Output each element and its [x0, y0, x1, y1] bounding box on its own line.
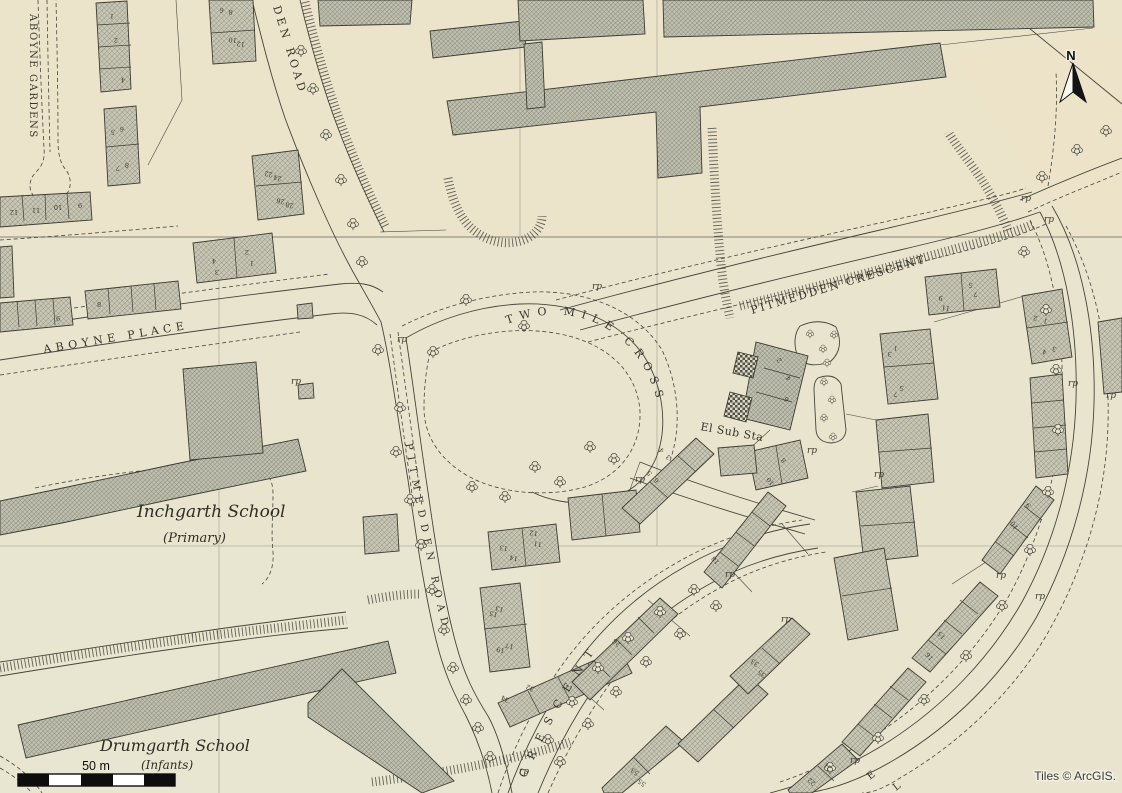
rp-marker: rp [1021, 194, 1031, 204]
building [318, 0, 412, 26]
house-number: 22 [264, 169, 274, 179]
house-number: 14 [509, 553, 519, 562]
rp-marker: rp [291, 377, 301, 387]
rp-marker: rp [1106, 391, 1116, 401]
rp-marker: rp [996, 571, 1006, 581]
house-number: 4 [211, 257, 216, 265]
north-arrow-label: N [1066, 48, 1075, 63]
house-number: 11 [533, 539, 543, 548]
drumgarth-school-label: Drumgarth School [99, 736, 250, 755]
house-number: 8 [97, 300, 101, 308]
drumgarth-type-label: (Infants) [141, 758, 193, 772]
house-number: 6 [119, 125, 124, 133]
map-attribution: Tiles © ArcGIS. [1034, 769, 1116, 783]
rp-marker: rp [1044, 215, 1054, 225]
house-number: 11 [941, 303, 950, 312]
house-number: 24 [273, 173, 283, 183]
house-number: 13 [499, 543, 509, 552]
map-viewport[interactable]: rprprprprprprprprprprprprprprprp ABOYNE … [0, 0, 1122, 793]
house-number: 2 [244, 248, 249, 256]
house-number: 10 [228, 35, 237, 44]
building [524, 42, 545, 109]
rp-marker: rp [807, 446, 817, 456]
house-number: 9 [78, 201, 82, 209]
inchgarth-school-label: Inchgarth School [136, 502, 285, 522]
rp-marker: rp [592, 282, 602, 292]
rp-marker: rp [1035, 592, 1045, 602]
house-number: 7 [115, 164, 120, 172]
house-number: 26 [276, 196, 286, 206]
house-number: 5 [110, 128, 115, 136]
building [0, 246, 14, 298]
building [104, 106, 140, 186]
building [297, 303, 313, 319]
house-number: 11 [32, 206, 40, 214]
building [733, 352, 758, 378]
building [252, 150, 304, 220]
house-number: 4 [120, 76, 125, 84]
house-number: 2 [113, 36, 118, 44]
house-number: 8 [124, 161, 129, 169]
rp-marker: rp [635, 475, 645, 485]
rp-marker: rp [874, 470, 884, 480]
building [183, 362, 263, 460]
building [876, 414, 934, 488]
scale-bar-label: 50 m [82, 759, 110, 773]
house-number: 1 [249, 259, 254, 267]
rp-marker: rp [781, 615, 791, 625]
house-number: 1 [109, 12, 114, 20]
building [1030, 374, 1068, 478]
building [518, 0, 645, 41]
house-number: 10 [54, 203, 62, 211]
house-number: 12 [10, 208, 18, 216]
rp-marker: rp [850, 756, 860, 766]
rp-marker: rp [1068, 379, 1078, 389]
building [363, 514, 399, 554]
inchgarth-type-label: (Primary) [163, 531, 226, 546]
rp-marker: rp [397, 335, 407, 345]
map-canvas[interactable]: rprprprprprprprprprprprprprprprp ABOYNE … [0, 0, 1122, 793]
house-number: 12 [529, 528, 539, 537]
house-number: 9 [56, 314, 60, 322]
house-number: 28 [285, 200, 295, 210]
building [718, 445, 757, 476]
house-number: 3 [214, 268, 219, 276]
house-number: 12 [236, 39, 245, 48]
rp-marker: rp [725, 570, 735, 580]
aboyne-gardens-label: ABOYNE GARDENS [27, 13, 38, 139]
